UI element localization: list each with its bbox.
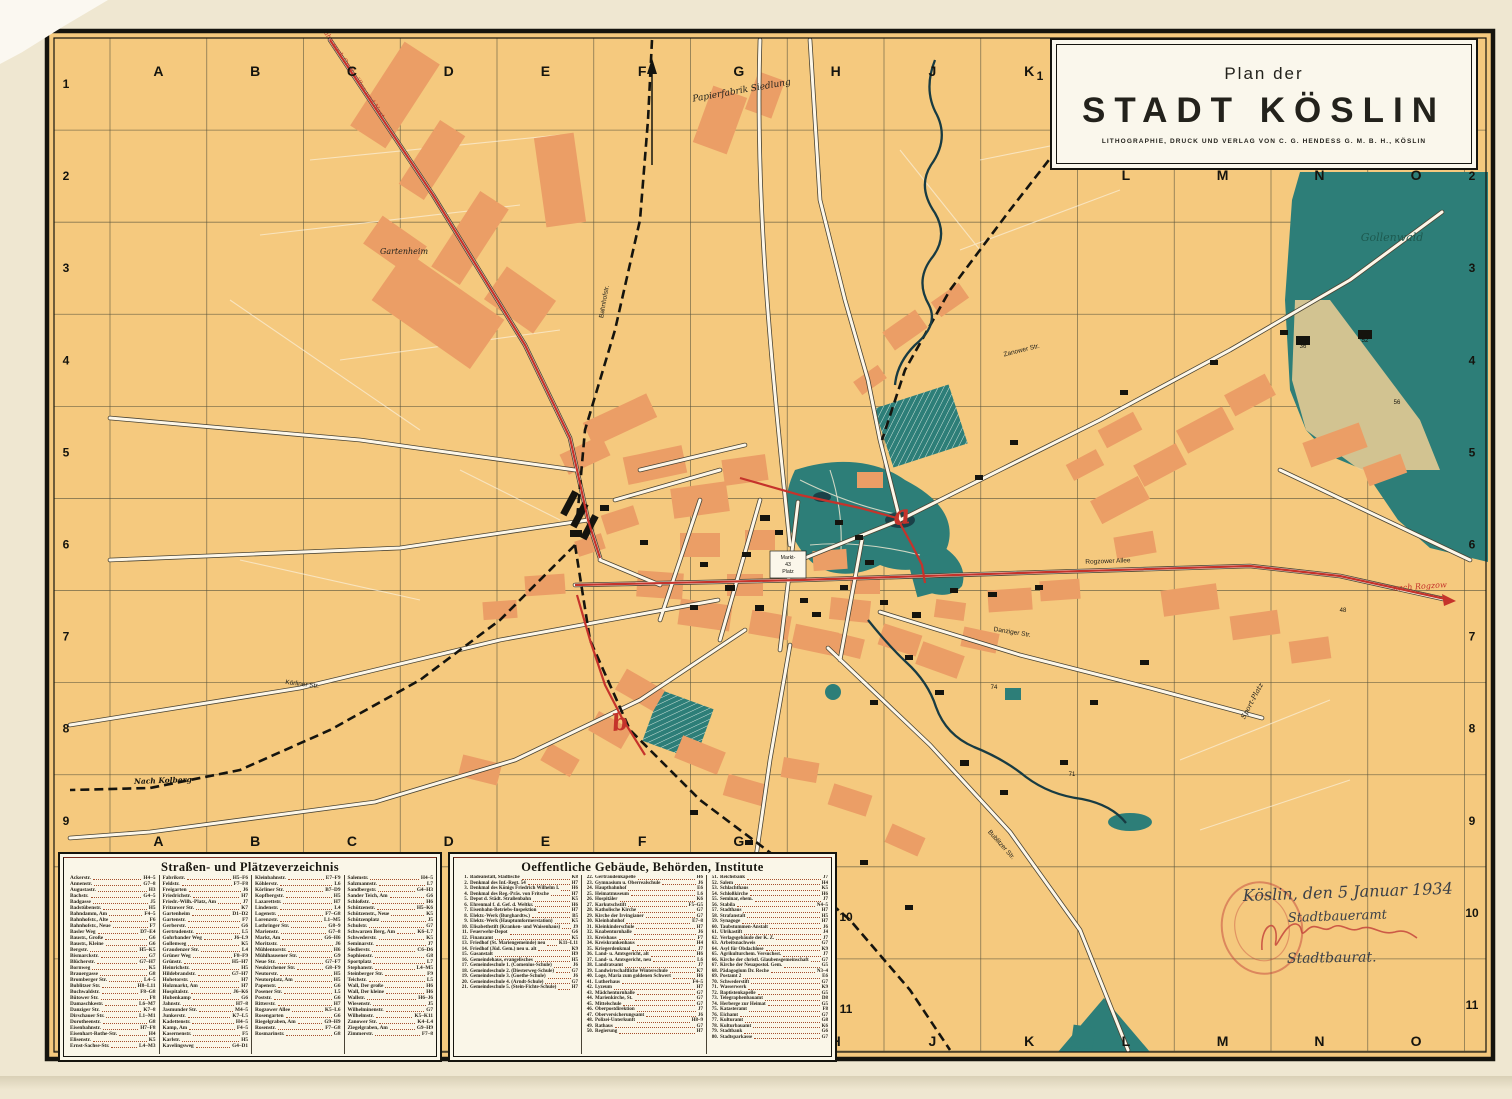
grid-letter-bottom: C <box>347 833 357 849</box>
title-cartouche: Plan der STADT KÖSLIN LITHOGRAPHIE, DRUC… <box>1050 38 1478 170</box>
map-label: Gartenheim <box>380 247 429 256</box>
grid-letter-top: B <box>250 63 260 79</box>
map-label: 71 <box>1069 772 1076 778</box>
grid-letter-bottom: B <box>250 833 260 849</box>
map-label: Markt- <box>781 555 796 561</box>
map-label: 43 <box>785 562 791 568</box>
map-label: Gollenwald <box>1361 231 1424 244</box>
building-speck <box>860 860 868 865</box>
street-index-title: Straßen- und Plätzeverzeichnis <box>67 860 433 874</box>
map-label: 56 <box>1394 400 1401 406</box>
index-column: 51.ReichsbankJ752.SalemH453.Schlachthaus… <box>706 875 828 1054</box>
street-index-columns: Ackerstr.H4–5Annenstr.G7–8Augustastr.H3B… <box>67 875 433 1054</box>
grid-letter-bottom: D <box>444 833 454 849</box>
grid-number-right: 3 <box>1469 261 1476 275</box>
map-label: 36 <box>1300 344 1307 350</box>
grid-number-left: 8 <box>63 722 70 736</box>
building-speck <box>865 560 874 565</box>
building-speck <box>880 600 888 605</box>
city-block <box>987 587 1032 612</box>
street-entry: KavelingswegG4–D1 <box>163 1043 249 1049</box>
grid-letter-top: J <box>928 63 936 79</box>
building-speck <box>755 605 764 611</box>
building-speck <box>570 530 582 537</box>
pond <box>1108 813 1152 831</box>
grid-letter-bottom: M <box>1217 1033 1229 1049</box>
building-speck <box>960 760 969 766</box>
building-speck <box>950 588 958 593</box>
map-label: 74 <box>991 685 998 691</box>
paper-edge-shadow <box>0 1076 1512 1099</box>
building-speck <box>905 905 913 910</box>
map-label: Platz <box>782 569 794 575</box>
index-column: 1.Badeanstalt, StädtischeK82.Denkmal des… <box>457 875 578 1054</box>
building-speck <box>935 690 944 695</box>
building-entry: 50.RegierungH7 <box>585 1029 703 1035</box>
grid-letter-bottom: A <box>153 833 163 849</box>
buildings-index-title: Oeffentliche Gebäude, Behörden, Institut… <box>457 860 828 874</box>
grid-number-left: 1 <box>63 77 70 91</box>
grid-number-left: 9 <box>63 814 70 828</box>
grid-number-left: 4 <box>63 353 70 367</box>
grid-letter-top: D <box>444 63 454 79</box>
grid-number-right: 2 <box>1469 169 1476 183</box>
index-column: Fabrikstr.H5–F6Feldstr.F7–F8FreigartenJ6… <box>159 875 249 1054</box>
building-speck <box>1000 790 1008 795</box>
building-speck <box>840 585 848 590</box>
building-speck <box>745 840 753 845</box>
building-speck <box>800 598 808 603</box>
building-speck <box>760 515 770 521</box>
grid-number-left: 7 <box>63 630 70 644</box>
building-speck <box>905 655 913 660</box>
building-entry: 80.StadtsparkasseG7 <box>710 1035 828 1041</box>
index-column: Ackerstr.H4–5Annenstr.G7–8Augustastr.H3B… <box>67 875 156 1054</box>
index-column: Salemstr.H4–5Salzmannstr.L7Sandbergstr.G… <box>344 875 434 1054</box>
building-speck <box>835 520 843 525</box>
building-entry: 21.Gemeindeschule 5. (Stein-Fichte-Schul… <box>460 985 578 991</box>
grid-number-left: 3 <box>63 261 70 275</box>
building-speck <box>1210 360 1218 365</box>
grid-letter-top: A <box>153 63 163 79</box>
map-title: STADT KÖSLIN <box>1082 91 1446 131</box>
city-block <box>857 472 883 488</box>
city-block <box>482 600 517 620</box>
grid-number-right: 5 <box>1469 445 1476 459</box>
building-speck <box>912 612 921 618</box>
building-speck <box>1140 660 1149 665</box>
street-entry: Rosmarinstr.G8 <box>255 1031 341 1037</box>
building-speck <box>870 700 878 705</box>
map-label: 48 <box>1340 608 1347 614</box>
grid-letter-top: K <box>1024 63 1034 79</box>
map-label: 52 <box>1362 338 1369 344</box>
building-speck <box>975 475 983 480</box>
city-block <box>1039 579 1080 602</box>
grid-letter-bottom: E <box>541 833 550 849</box>
note-signatory: Stadtbaurat. <box>1287 949 1377 967</box>
grid-letter-top: G <box>733 63 744 79</box>
building-speck <box>1035 585 1043 590</box>
grid-number-left: 5 <box>63 445 70 459</box>
grid-number-inner: 11 <box>840 1002 853 1016</box>
building-speck <box>855 535 863 540</box>
grid-number-right: 4 <box>1469 353 1476 367</box>
building-speck <box>690 605 698 610</box>
grid-letter-top: C <box>347 63 357 79</box>
grid-number-corner: 1 <box>1037 69 1044 83</box>
grid-letter-bottom: K <box>1024 1033 1034 1049</box>
grid-letter-top: F <box>638 63 647 79</box>
building-speck <box>1280 330 1288 335</box>
grid-number-right: 10 <box>1465 906 1479 920</box>
building-speck <box>1060 760 1068 765</box>
grid-number-right: 7 <box>1469 630 1476 644</box>
index-column: 22.GertraudenkapelleH623.Gymnasium u. Ob… <box>581 875 703 1054</box>
grid-number-right: 8 <box>1469 722 1476 736</box>
buildings-index-box: Oeffentliche Gebäude, Behörden, Institut… <box>448 852 837 1062</box>
building-speck <box>988 592 997 597</box>
grid-letter-top: E <box>541 63 550 79</box>
street-index-box: Straßen- und Plätzeverzeichnis Ackerstr.… <box>58 852 442 1062</box>
street-entry: Ernst-Sachse-Str.L4–M3 <box>70 1043 156 1049</box>
building-speck <box>775 530 783 535</box>
buildings-index-columns: 1.Badeanstalt, StädtischeK82.Denkmal des… <box>457 875 828 1054</box>
building-speck <box>812 612 821 617</box>
building-speck <box>725 585 735 591</box>
building-speck <box>1010 440 1018 445</box>
building-speck <box>690 810 698 815</box>
street-entry: Zimmerstr.F7–8 <box>348 1031 434 1037</box>
city-block <box>524 574 565 597</box>
index-column: Kleinbahnstr.E7–F9Köhlerstr.L6Körliner S… <box>251 875 341 1054</box>
building-speck <box>700 562 708 567</box>
grid-letter-bottom: O <box>1411 1033 1422 1049</box>
building-speck <box>742 552 751 557</box>
grid-number-right: 9 <box>1469 814 1476 828</box>
grid-letter-bottom: F <box>638 833 647 849</box>
grid-number-left: 2 <box>63 169 70 183</box>
map-kicker: Plan der <box>1224 64 1303 84</box>
building-speck <box>1090 700 1098 705</box>
grid-number-right: 11 <box>1466 998 1479 1012</box>
building-speck <box>640 540 648 545</box>
grid-letter-top: H <box>831 63 841 79</box>
building-speck <box>1120 390 1128 395</box>
grid-letter-bottom: N <box>1314 1033 1324 1049</box>
grid-number-left: 6 <box>63 537 70 551</box>
grid-letter-bottom: L <box>1122 1033 1131 1049</box>
building-speck <box>600 505 609 511</box>
grid-number-inner: 10 <box>839 910 853 924</box>
grid-letter-bottom: J <box>928 1033 936 1049</box>
grid-letter-bottom: G <box>733 833 744 849</box>
map-imprint: LITHOGRAPHIE, DRUCK UND VERLAG VON C. G.… <box>1102 138 1426 145</box>
grid-number-right: 6 <box>1469 537 1476 551</box>
